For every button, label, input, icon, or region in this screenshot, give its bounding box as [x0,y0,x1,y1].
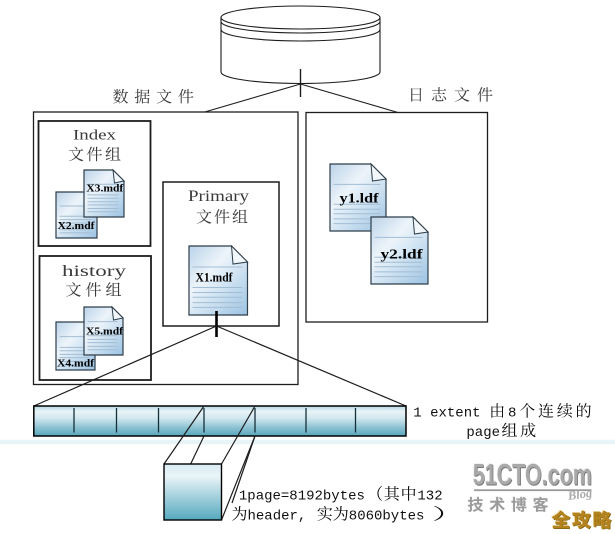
svg-text:8: 8 [508,406,516,422]
svg-text:Index: Index [73,128,117,144]
svg-text:history: history [62,263,126,280]
svg-text:y2.ldf: y2.ldf [381,248,423,263]
svg-text:header,: header, [248,509,307,525]
svg-text:8060bytes: 8060bytes [349,509,425,525]
svg-text:page: page [466,425,500,441]
svg-text:51CTO.com: 51CTO.com [473,459,592,491]
svg-text:X2.mdf: X2.mdf [58,220,95,232]
svg-text:1page=8192bytes: 1page=8192bytes [239,489,365,505]
svg-text:y1.ldf: y1.ldf [340,192,379,207]
svg-text:132: 132 [417,489,442,505]
svg-text:X5.mdf: X5.mdf [86,326,123,338]
svg-text:Blog: Blog [566,486,593,503]
svg-text:X4.mdf: X4.mdf [57,358,94,370]
svg-text:1 extent: 1 extent [413,406,480,422]
svg-text:X1.mdf: X1.mdf [196,270,234,285]
svg-text:X3.mdf: X3.mdf [86,183,123,195]
svg-text:Primary: Primary [188,188,249,205]
